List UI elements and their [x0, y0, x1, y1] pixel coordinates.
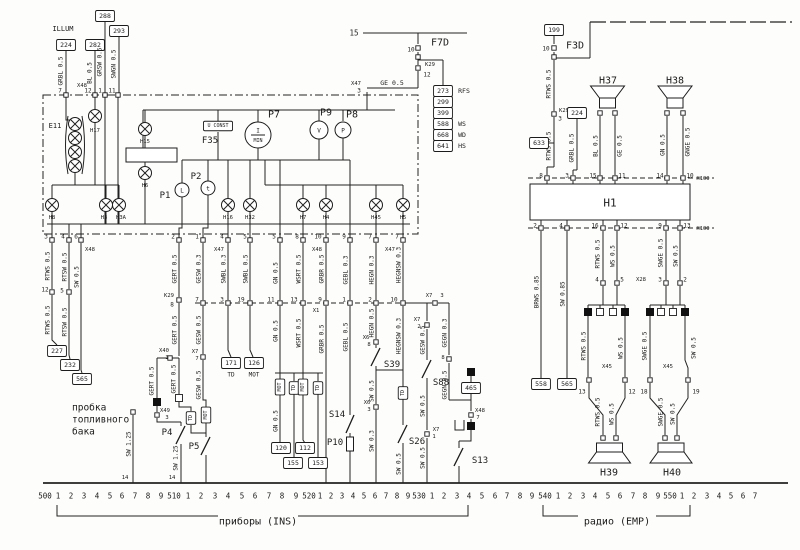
svg-text:8: 8 [518, 492, 523, 501]
svg-text:9: 9 [656, 492, 661, 501]
svg-text:H37: H37 [599, 76, 617, 87]
warning-lamp-icon [244, 199, 257, 212]
comp-h3a: H3A [116, 215, 127, 221]
wire-rtws-05-a: RTWS 0.5 [546, 69, 553, 98]
ruler-mark-37: 7 [505, 492, 510, 501]
svg-text:155: 155 [287, 459, 299, 467]
warning-lamp-icon [69, 146, 82, 159]
conn-x6-3: X6 [364, 400, 371, 406]
svg-text:HS: HS [458, 142, 466, 150]
svg-text:H32: H32 [245, 215, 255, 221]
svg-text:500: 500 [38, 492, 52, 501]
pin-x1-7: 7 [195, 297, 199, 304]
svg-text:GERT 0.5: GERT 0.5 [172, 254, 179, 283]
ruler-mark-21: 1 [318, 492, 323, 501]
ruler-mark-14: 4 [226, 492, 231, 501]
pin-x1-1: 1 [342, 297, 346, 304]
connector-pin [615, 281, 619, 285]
wire-ge-05: GE 0.5 [380, 79, 404, 87]
pin-x100-16: 16 [591, 223, 599, 230]
svg-text:GRBR 0.5: GRBR 0.5 [319, 254, 326, 283]
svg-text:3: 3 [367, 407, 370, 413]
svg-text:3: 3 [165, 355, 168, 361]
svg-text:GEBL 0.5: GEBL 0.5 [343, 322, 350, 351]
conn-x45-left: X45 [602, 364, 612, 370]
comp-p9-v: V [317, 128, 321, 135]
wire-sw-05-h40: SW 0.5 [670, 403, 677, 425]
wire-rtws-05-h1: RTWS 0.5 [595, 239, 602, 268]
svg-text:TD: TD [291, 385, 297, 391]
fuse-f3d: F3D [566, 41, 584, 52]
conn-x7-7: X7 [192, 349, 199, 355]
svg-text:H17: H17 [90, 128, 100, 134]
pin-x100-13: 13 [683, 223, 691, 230]
terminal-block-filled [682, 309, 689, 316]
pin-x28-2: 2 [683, 277, 687, 284]
svg-text:GRBL 0.5: GRBL 0.5 [58, 56, 65, 85]
fuse-f7d-pin10: 10 [407, 47, 415, 54]
svg-text:X47: X47 [214, 247, 224, 253]
svg-text:1: 1 [680, 492, 685, 501]
connector-pin [416, 46, 420, 50]
svg-text:GRBL 0.5: GRBL 0.5 [569, 133, 576, 162]
svg-text:BRWS 0.85: BRWS 0.85 [534, 275, 541, 308]
wire-sw-05-s39: SW 0.5 [369, 380, 376, 402]
ruler-mark-24: 4 [351, 492, 356, 501]
conn-x7-3: X7 [426, 293, 433, 299]
connector-pin [324, 238, 328, 242]
ruler-mark-35: 5 [480, 492, 485, 501]
terminal-block-filled [647, 309, 654, 316]
wire-ge-05-h37: GE 0.5 [617, 135, 624, 157]
ruler-mark-22: 2 [329, 492, 334, 501]
ref-td-v3: TD [186, 412, 196, 425]
resistor-p10-icon [347, 437, 354, 451]
wire-grbl-05-radio: GRBL 0.5 [569, 133, 576, 162]
svg-text:P4: P4 [162, 428, 173, 438]
pin-x47-7b: 7 [395, 234, 399, 241]
ref-box-399: 399 [434, 108, 453, 119]
conn-x7-1: X7 [433, 427, 440, 433]
wire-gert-05-1: GERT 0.5 [172, 254, 179, 283]
comp-p8-p: P [341, 128, 345, 135]
svg-text:5: 5 [362, 492, 367, 501]
connector-pin [598, 111, 602, 115]
ruler-mark-16: 6 [253, 492, 258, 501]
warning-lamp-icon [69, 118, 82, 131]
conn-x48-mid: X48 [312, 247, 322, 253]
svg-text:X6: X6 [364, 400, 371, 406]
pin-x100-11: 11 [618, 173, 626, 180]
svg-text:9: 9 [159, 492, 164, 501]
svg-text:GESW 0.5: GESW 0.5 [196, 315, 203, 344]
svg-text:GERT 0.5: GERT 0.5 [171, 364, 178, 393]
conn-x48-7-pin: 7 [476, 415, 479, 421]
wiring-diagram: ILLUM224282288293GRBL 0.5BL 0.5GRSW 0.5S… [0, 0, 800, 550]
svg-text:288: 288 [99, 12, 111, 20]
comp-h4: H4 [323, 215, 330, 221]
svg-text:3: 3 [440, 293, 443, 299]
svg-text:GERT 0.5: GERT 0.5 [149, 366, 156, 395]
connector-pin [131, 410, 135, 414]
pin-x48-4: 4 [61, 234, 65, 241]
svg-text:5: 5 [108, 492, 113, 501]
wire-gesw-05-a: GESW 0.5 [196, 370, 203, 399]
fuse-f7d: F7D [431, 38, 449, 49]
svg-text:8: 8 [170, 302, 174, 309]
connector-pin [623, 378, 627, 382]
svg-text:6: 6 [74, 234, 78, 241]
ref-126-mot: MOT [249, 372, 260, 379]
ruler-mark-3: 3 [82, 492, 87, 501]
comp-f35-uconst: U CONST [203, 121, 232, 131]
conn-k29-gert: K29 [164, 293, 174, 299]
conn-x7-1-pin: 1 [432, 434, 435, 440]
svg-text:6: 6 [253, 492, 258, 501]
svg-text:3: 3 [705, 492, 710, 501]
svg-text:8: 8 [280, 492, 285, 501]
svg-text:HEGN 0.5: HEGN 0.5 [369, 308, 376, 337]
conn-x28: X28 [636, 277, 646, 283]
svg-text:SW 0.5: SW 0.5 [396, 453, 403, 475]
ref-td-v4: TD [398, 387, 408, 400]
svg-text:2: 2 [683, 277, 687, 284]
svg-text:5: 5 [480, 492, 485, 501]
wire-bl-05-h37: BL 0.5 [593, 135, 600, 157]
svg-text:4: 4 [559, 223, 563, 230]
svg-text:MIN: MIN [253, 138, 262, 144]
svg-text:H45: H45 [371, 215, 381, 221]
comp-p5: P5 [189, 442, 200, 452]
connector-pin [50, 238, 54, 242]
svg-text:4: 4 [467, 492, 472, 501]
comp-h8: H8 [49, 215, 56, 221]
svg-text:SW 0.5: SW 0.5 [691, 337, 698, 359]
connector-pin [565, 226, 569, 230]
connector-pin [665, 111, 669, 115]
conn-x7-2-pin: 2 [417, 324, 420, 330]
sender-p4-blade [176, 426, 185, 444]
svg-text:10: 10 [314, 234, 322, 241]
svg-text:9: 9 [318, 297, 322, 304]
tachometer-p7-icon [245, 122, 271, 148]
wire-sw-125-tank: SW 1.25 [126, 431, 133, 457]
svg-text:GN 0.5: GN 0.5 [273, 320, 280, 342]
svg-text:H38: H38 [666, 76, 684, 87]
svg-text:588: 588 [437, 120, 449, 128]
svg-text:SW 1.25: SW 1.25 [126, 431, 133, 457]
speaker-h38-icon [658, 86, 692, 108]
terminal-block-filled [468, 369, 475, 376]
terminal-block-open [597, 309, 604, 316]
svg-text:232: 232 [64, 361, 76, 369]
comp-h38: H38 [666, 76, 684, 87]
ruler-mark-18: 8 [280, 492, 285, 501]
wire-hegnsw-03-a: HEGNSW 0.3 [396, 247, 403, 284]
ruler-mark-17: 7 [267, 492, 272, 501]
pin-x1-19: 19 [237, 297, 245, 304]
ruler-mark-45: 5 [606, 492, 611, 501]
svg-text:X49: X49 [160, 408, 170, 414]
pin-1-top: 1 [98, 88, 102, 95]
svg-text:P9: P9 [320, 108, 332, 119]
svg-text:5: 5 [272, 234, 276, 241]
conn-x49-pin3: 3 [165, 415, 168, 421]
svg-text:BL 0.5: BL 0.5 [87, 62, 94, 84]
svg-text:7: 7 [133, 492, 138, 501]
section-braces [57, 505, 690, 516]
pin-x28-4: 4 [595, 277, 599, 284]
svg-text:293: 293 [113, 27, 125, 35]
ruler-mark-9: 9 [159, 492, 164, 501]
connector-pin [678, 281, 682, 285]
conn-x47-3: X47 [351, 81, 361, 87]
ground-14-a: 14 [122, 475, 129, 481]
svg-text:227: 227 [51, 347, 63, 355]
connector-pin [614, 436, 618, 440]
wire-gnge-05-h38: GNGE 0.5 [685, 127, 692, 156]
wire-hegn-03: HEGN 0.3 [369, 255, 376, 284]
ruler-mark-27: 7 [384, 492, 389, 501]
terminal-block-open [176, 395, 183, 402]
wire-gesw-05-b: GESW 0.5 [196, 315, 203, 344]
pin-x100-15: 15 [589, 173, 597, 180]
svg-text:1: 1 [195, 234, 199, 241]
conn-x6-8: X6 [363, 335, 370, 341]
svg-text:4: 4 [61, 234, 65, 241]
comp-s13: S13 [472, 456, 488, 466]
svg-text:7: 7 [631, 492, 636, 501]
ruler-mark-28: 8 [395, 492, 400, 501]
svg-text:ILLUM: ILLUM [52, 25, 73, 33]
ruler-mark-11: 1 [186, 492, 191, 501]
wire-grbl-05: GRBL 0.5 [58, 56, 65, 85]
svg-text:9: 9 [530, 492, 535, 501]
pin-x48-3: 3 [44, 234, 48, 241]
conn-x6-8-pin: 8 [367, 342, 370, 348]
svg-text:12: 12 [628, 389, 636, 396]
svg-text:399: 399 [437, 109, 449, 117]
ref-box-465: 465 [462, 383, 481, 394]
wire-gegn-05: GEGN 0.5 [442, 370, 449, 399]
svg-text:SW 0.5: SW 0.5 [420, 395, 427, 417]
terminal-block-open [658, 309, 665, 316]
pin-x48-8: 8 [295, 234, 299, 241]
connector-pin [374, 405, 378, 409]
svg-text:X48: X48 [85, 247, 95, 253]
connector-pin [226, 301, 230, 305]
section-ins: приборы (INS) [219, 516, 297, 528]
comp-p1: P1 [160, 191, 171, 201]
svg-text:радио (EMP): радио (EMP) [584, 517, 650, 528]
ruler-mark-36: 6 [493, 492, 498, 501]
svg-text:16: 16 [591, 223, 599, 230]
svg-text:12: 12 [84, 88, 92, 95]
pin-5-left: 5 [60, 288, 64, 295]
connector-pin [648, 378, 652, 382]
svg-text:GEBL 0.3: GEBL 0.3 [343, 255, 350, 284]
svg-text:X1: X1 [313, 308, 320, 314]
svg-text:5: 5 [606, 492, 611, 501]
comp-s26: S26 [409, 437, 425, 447]
ruler-mark-4: 4 [95, 492, 100, 501]
svg-text:120: 120 [275, 444, 287, 452]
ruler-mark-34: 4 [467, 492, 472, 501]
ref-box-299: 299 [434, 97, 453, 108]
svg-text:1: 1 [318, 492, 323, 501]
svg-text:S13: S13 [472, 456, 488, 466]
connector-pin [177, 298, 181, 302]
ground-14-b: 14 [169, 475, 176, 481]
svg-text:X100: X100 [696, 176, 709, 182]
term-box-565: 565 [73, 374, 92, 385]
pin-x100-3: 3 [565, 173, 569, 180]
ruler-mark-57: 7 [753, 492, 758, 501]
pin-x48-9: 9 [342, 234, 346, 241]
svg-text:465: 465 [465, 384, 477, 392]
connector-pin [552, 46, 556, 50]
conn-x6-8b-pin: 8 [441, 355, 444, 361]
connector-pin [301, 301, 305, 305]
svg-text:WS 0.5: WS 0.5 [610, 245, 617, 267]
svg-text:HEGNSW 0.3: HEGNSW 0.3 [396, 247, 403, 284]
wire-ws-05-h1: WS 0.5 [610, 245, 617, 267]
ruler-mark-44: 4 [593, 492, 598, 501]
connector-pin [613, 176, 617, 180]
svg-text:2: 2 [442, 492, 447, 501]
connector-pin [571, 176, 575, 180]
svg-text:SW 0.5: SW 0.5 [369, 380, 376, 402]
svg-text:14: 14 [169, 475, 176, 481]
pin-x100-14: 14 [656, 173, 664, 180]
terminal-block-filled [622, 309, 629, 316]
pin-x45-13: 13 [578, 389, 586, 396]
svg-text:1: 1 [430, 492, 435, 501]
term-box-633: 633 [530, 138, 549, 149]
connector-pin [587, 378, 591, 382]
pin-x45-18: 18 [640, 389, 648, 396]
svg-text:H3A: H3A [116, 215, 127, 221]
svg-text:2: 2 [533, 223, 537, 230]
svg-text:пробка: пробка [72, 403, 106, 414]
svg-text:7: 7 [368, 234, 372, 241]
svg-text:RTWS 0.5: RTWS 0.5 [45, 305, 52, 334]
svg-text:8: 8 [643, 492, 648, 501]
ref-mot-v1: MOT [275, 379, 285, 395]
connector-pin [664, 226, 668, 230]
svg-text:4: 4 [595, 277, 599, 284]
conn-x49: X49 [160, 408, 170, 414]
terminal-block-filled [154, 399, 161, 406]
connector-pin [433, 301, 437, 305]
terminal-block-filled [468, 423, 475, 430]
svg-text:X48: X48 [312, 247, 322, 253]
connector-pin [79, 238, 83, 242]
svg-text:TD: TD [315, 385, 321, 391]
wire-rtsw-05-1: RTSW 0.5 [62, 252, 69, 281]
svg-text:SW 0.85: SW 0.85 [560, 281, 567, 307]
svg-text:11: 11 [267, 297, 275, 304]
svg-text:10: 10 [390, 297, 398, 304]
svg-text:3: 3 [565, 173, 569, 180]
svg-text:550: 550 [663, 492, 677, 501]
wire-bl-05: BL 0.5 [87, 62, 94, 84]
pin-x28-3: 3 [658, 277, 662, 284]
svg-text:126: 126 [248, 359, 260, 367]
svg-text:S26: S26 [409, 437, 425, 447]
warning-lamp-icon [100, 199, 113, 212]
ruler-mark-48: 8 [643, 492, 648, 501]
svg-text:H1: H1 [603, 197, 616, 210]
term-box-565-radio: 565 [558, 379, 577, 390]
svg-text:11: 11 [108, 88, 116, 95]
svg-text:2: 2 [692, 492, 697, 501]
conn-x40: X40 [159, 348, 169, 354]
comp-h17: H17 [90, 128, 100, 134]
svg-text:7: 7 [753, 492, 758, 501]
svg-text:F35: F35 [202, 136, 218, 146]
ref-273-rfs: RFS [458, 87, 470, 95]
svg-text:3: 3 [220, 297, 224, 304]
wire-sw-05-s26: SW 0.5 [396, 453, 403, 475]
conn-x100-bottom: X100 [696, 226, 709, 232]
term-box-558: 558 [532, 379, 551, 390]
connector-pin [416, 55, 420, 59]
svg-text:GE 0.5: GE 0.5 [617, 135, 624, 157]
fuel-cap-line1: пробка [72, 403, 106, 414]
ruler-mark-38: 8 [518, 492, 523, 501]
svg-text:3: 3 [658, 277, 662, 284]
svg-text:15: 15 [349, 29, 358, 38]
ref-td-v2: TD [313, 382, 323, 395]
svg-text:TD: TD [227, 372, 235, 379]
svg-text:RFS: RFS [458, 87, 470, 95]
svg-text:8: 8 [395, 492, 400, 501]
svg-text:7: 7 [58, 88, 62, 95]
ruler-mark-23: 3 [340, 492, 345, 501]
svg-text:4: 4 [717, 492, 722, 501]
comp-f35: F35 [202, 136, 218, 146]
svg-text:SW 0.5: SW 0.5 [673, 245, 680, 267]
ref-mot-v3: MOT [201, 407, 211, 423]
svg-text:WSRT 0.5: WSRT 0.5 [296, 254, 303, 283]
conn-k29-f7d: K29 [425, 62, 435, 68]
ruler-mark-41: 1 [556, 492, 561, 501]
svg-text:7: 7 [476, 415, 479, 421]
svg-text:2: 2 [199, 492, 204, 501]
svg-text:H4: H4 [323, 215, 330, 221]
connector-pin [678, 226, 682, 230]
wire-brws-085: BRWS 0.85 [534, 275, 541, 308]
svg-text:P8: P8 [346, 110, 358, 121]
svg-text:565: 565 [76, 375, 88, 383]
pin-x47-5: 5 [243, 234, 247, 241]
svg-text:S39: S39 [384, 360, 400, 370]
ruler-mark-31: 1 [430, 492, 435, 501]
svg-text:4: 4 [593, 492, 598, 501]
connector-pin [374, 301, 378, 305]
ref-box-155: 155 [284, 458, 303, 469]
svg-text:3: 3 [44, 234, 48, 241]
svg-text:X7: X7 [433, 427, 440, 433]
ref-box-120: 120 [272, 443, 291, 454]
svg-text:6: 6 [618, 492, 623, 501]
switch-s13-blade [454, 448, 463, 466]
connector-pin [416, 66, 420, 70]
comp-h37: H37 [599, 76, 617, 87]
svg-text:t: t [206, 186, 210, 193]
svg-text:668: 668 [437, 131, 449, 139]
